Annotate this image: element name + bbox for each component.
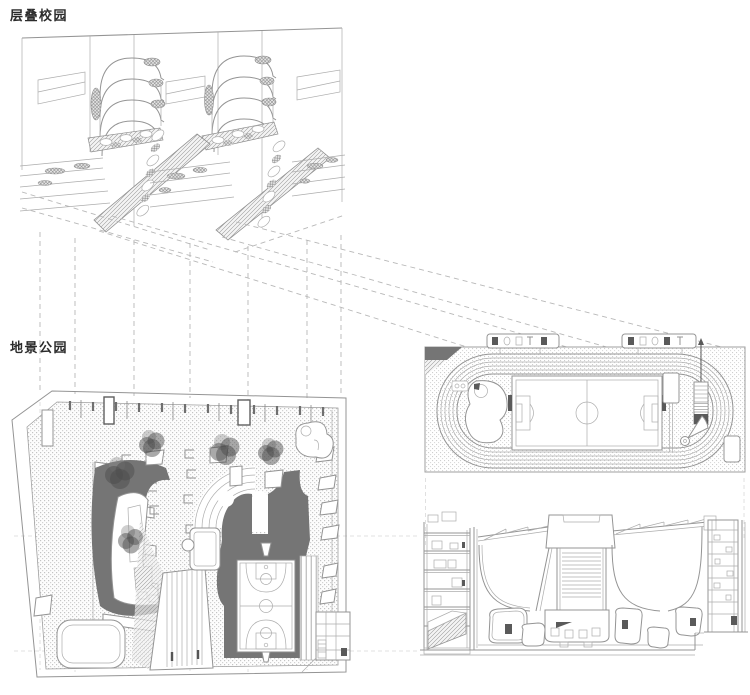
plan-bottom-right-pad <box>724 436 740 462</box>
sports-field-plan <box>425 334 745 472</box>
layered-campus-drawing <box>20 28 345 262</box>
park-basketball-court <box>237 560 295 662</box>
campus-panels <box>22 28 342 228</box>
drawing-board: 层叠校园 地景公园 <box>0 0 750 695</box>
campus-arc-structure-left <box>88 58 165 156</box>
park-gate-right <box>238 400 250 425</box>
drawings-canvas <box>0 0 750 695</box>
park-white-pillar <box>252 491 268 532</box>
park-gate-left <box>104 397 114 424</box>
section-left-wing <box>424 512 470 654</box>
building-section-drawing <box>420 512 748 655</box>
architecture-board: { "labels": { "layered_campus": "层叠校园", … <box>0 0 750 695</box>
playground-mound <box>465 381 507 443</box>
landscape-park-drawing <box>12 391 350 677</box>
section-stair-core <box>536 515 615 647</box>
campus-arc-structure-right <box>202 56 278 152</box>
soccer-field <box>508 376 666 450</box>
section-bookshelf-wall <box>704 520 748 632</box>
bench-icon <box>452 381 468 391</box>
park-striped-strip <box>300 556 318 660</box>
